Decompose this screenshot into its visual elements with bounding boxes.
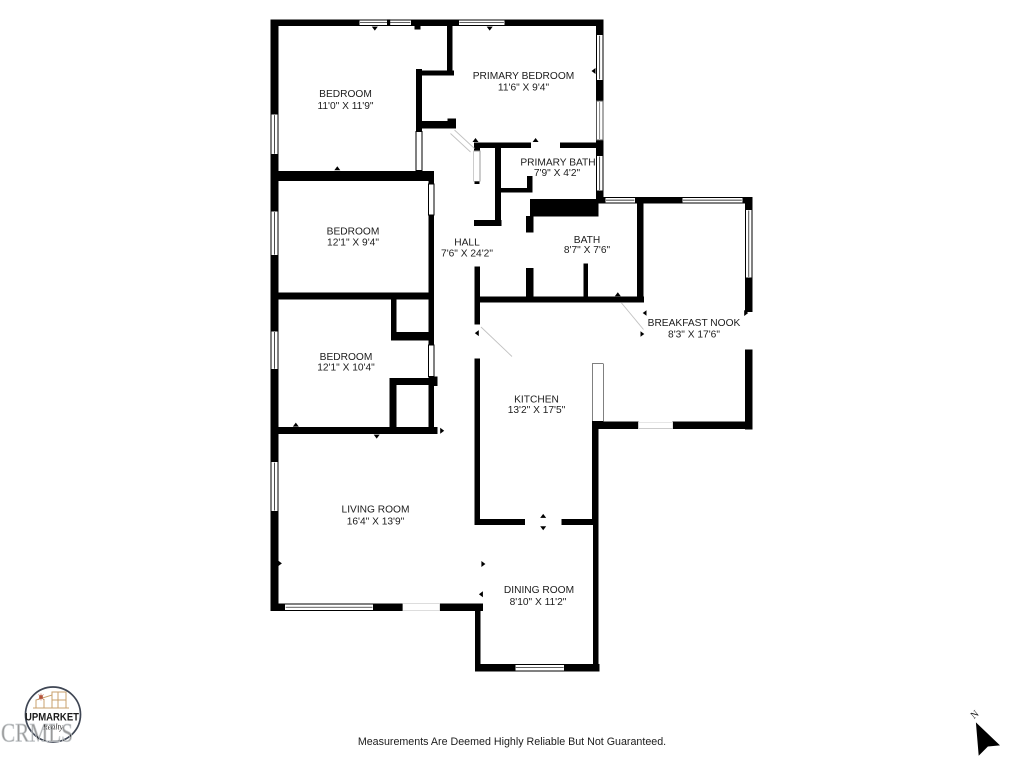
svg-text:BEDROOM: BEDROOM [327, 227, 380, 238]
svg-text:12'1" X 10'4": 12'1" X 10'4" [317, 362, 375, 373]
svg-text:Measurements Are Deemed Highly: Measurements Are Deemed Highly Reliable … [358, 736, 666, 748]
svg-text:16'4" X 13'9": 16'4" X 13'9" [347, 517, 405, 528]
svg-text:CRMLS: CRMLS [1, 719, 73, 748]
svg-text:BEDROOM: BEDROOM [319, 89, 372, 100]
svg-text:DINING ROOM: DINING ROOM [504, 585, 574, 596]
svg-text:8'7" X 7'6": 8'7" X 7'6" [564, 245, 611, 256]
svg-text:BEDROOM: BEDROOM [320, 352, 373, 363]
svg-text:LIVING ROOM: LIVING ROOM [342, 505, 410, 516]
svg-text:PRIMARY BATH: PRIMARY BATH [520, 157, 595, 168]
svg-text:PRIMARY BEDROOM: PRIMARY BEDROOM [473, 71, 575, 82]
svg-text:11'6" X 9'4": 11'6" X 9'4" [498, 83, 550, 94]
svg-text:11'0" X 11'9": 11'0" X 11'9" [317, 101, 373, 112]
svg-text:12'1" X 9'4": 12'1" X 9'4" [327, 237, 379, 248]
svg-text:7'9" X 4'2": 7'9" X 4'2" [534, 168, 581, 179]
svg-text:7'6" X 24'2": 7'6" X 24'2" [441, 248, 493, 259]
svg-text:13'2" X 17'5": 13'2" X 17'5" [508, 405, 566, 416]
svg-text:KITCHEN: KITCHEN [514, 394, 559, 405]
svg-text:8'10" X 11'2": 8'10" X 11'2" [510, 597, 567, 608]
svg-text:BREAKFAST NOOK: BREAKFAST NOOK [648, 318, 741, 329]
svg-text:HALL: HALL [454, 237, 480, 248]
svg-text:8'3" X 17'6": 8'3" X 17'6" [668, 330, 720, 341]
